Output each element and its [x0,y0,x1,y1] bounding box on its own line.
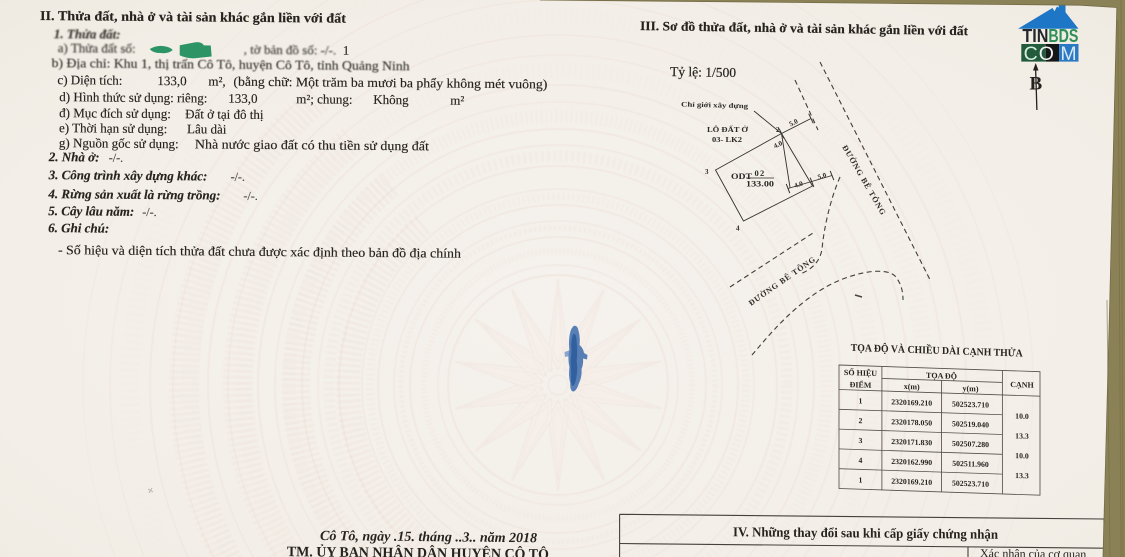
svg-text:3: 3 [859,436,863,445]
svg-text:a) Thửa đất số:: a) Thửa đất số: [58,40,136,56]
svg-text:CẠNH: CẠNH [1010,380,1034,390]
svg-text:4. Rừng sản xuất là rừng trồng: 4. Rừng sản xuất là rừng trồng: [47,186,220,203]
svg-text:(bằng chữ: Một trăm ba mươi ba: (bằng chữ: Một trăm ba mươi ba phẩy khôn… [233,74,547,92]
svg-text:3: 3 [705,168,709,176]
svg-text:c) Diện tích:: c) Diện tích: [57,72,122,88]
svg-text:502511.960: 502511.960 [952,459,989,469]
svg-text:13.3: 13.3 [1015,431,1029,440]
svg-text:-/-.: -/-. [142,205,156,219]
svg-text:3. Công trình xây dựng khác:: 3. Công trình xây dựng khác: [48,167,208,183]
svg-text:10.0: 10.0 [1015,412,1029,421]
svg-text:Xác nhận của cơ quan: Xác nhận của cơ quan [980,546,1086,557]
svg-text:2320162.990: 2320162.990 [891,457,932,467]
svg-text:-/-.: -/-. [109,151,123,165]
svg-text:, tờ bản đồ số: -/-.: , tờ bản đồ số: -/-. [244,42,337,58]
svg-text:b) Địa chỉ: Khu 1, thị trấn Cô: b) Địa chỉ: Khu 1, thị trấn Cô Tô, huyện… [52,55,411,73]
svg-text:13.3: 13.3 [1015,471,1029,480]
svg-text:2: 2 [776,126,780,134]
svg-text:5. Cây lâu năm:: 5. Cây lâu năm: [48,203,134,219]
svg-text:M: M [1060,43,1076,65]
svg-text:2320169.210: 2320169.210 [891,397,932,407]
svg-text:m²,: m², [208,73,225,88]
svg-text:Cô Tô, ngày .15. tháng ..3.. n: Cô Tô, ngày .15. tháng ..3.. năm 2018 [320,529,537,546]
svg-text:Đất ở tại đô thị: Đất ở tại đô thị [185,106,264,122]
svg-text:-/-.: -/-. [243,189,257,203]
svg-text:1: 1 [343,43,350,58]
svg-text:e) Thời hạn sử dụng:: e) Thời hạn sử dụng: [59,120,167,136]
svg-text:ĐIỂM: ĐIỂM [850,379,872,390]
svg-text:TỌA ĐỘ: TỌA ĐỘ [926,371,957,381]
svg-text:SỐ HIỆU: SỐ HIỆU [844,367,877,378]
svg-text:10.0: 10.0 [1015,451,1029,460]
svg-text:-/-.: -/-. [231,170,245,184]
svg-text:d) Hình thức sử dụng: riêng:: d) Hình thức sử dụng: riêng: [59,89,207,105]
svg-text:2320178.050: 2320178.050 [891,417,932,427]
svg-text:m²: m² [450,93,464,108]
svg-text:02: 02 [755,168,766,178]
svg-text:LÔ ĐẤT Ở: LÔ ĐẤT Ở [707,124,748,134]
svg-text:502519.040: 502519.040 [952,419,989,429]
svg-text:y(m): y(m) [963,384,979,394]
svg-text:Tỷ lệ: 1/500: Tỷ lệ: 1/500 [670,64,736,80]
svg-text:O: O [1039,43,1054,65]
svg-text:6. Ghi chú:: 6. Ghi chú: [48,220,109,236]
svg-text:B: B [1030,74,1043,95]
svg-text:133,0: 133,0 [157,73,186,88]
svg-text:Không: Không [373,92,409,107]
svg-text:4: 4 [736,225,740,233]
svg-text:C: C [1024,43,1038,65]
svg-text:1: 1 [859,476,863,485]
svg-text:Nhà nước giao đất có thu tiền: Nhà nước giao đất có thu tiền sử dụng đấ… [195,136,430,153]
svg-text:Lâu dài: Lâu dài [187,121,227,136]
svg-text:2. Nhà ở:: 2. Nhà ở: [48,149,100,164]
svg-text:m²; chung:: m²; chung: [296,91,352,106]
svg-text:4: 4 [859,456,863,465]
svg-text:502523.710: 502523.710 [952,399,989,409]
svg-text:2320171.830: 2320171.830 [891,437,932,447]
svg-text:đ) Mục đích sử dụng:: đ) Mục đích sử dụng: [59,105,171,121]
svg-text:2320169.210: 2320169.210 [891,477,932,487]
svg-text:03- LK2: 03- LK2 [712,135,742,144]
svg-text:502523.710: 502523.710 [952,479,989,489]
svg-text:133.00: 133.00 [746,180,774,189]
svg-text:502507.280: 502507.280 [952,439,989,449]
svg-text:IV. Những thay đổi sau khi cấp: IV. Những thay đổi sau khi cấp giấy chứn… [733,524,998,542]
svg-text:133,0: 133,0 [228,91,257,106]
svg-text:1: 1 [859,396,863,405]
svg-text:x(m): x(m) [904,382,920,392]
svg-text:2: 2 [859,416,863,425]
svg-text:II. Thửa đất, nhà ở và tài sản: II. Thửa đất, nhà ở và tài sản khác gắn … [40,8,347,26]
